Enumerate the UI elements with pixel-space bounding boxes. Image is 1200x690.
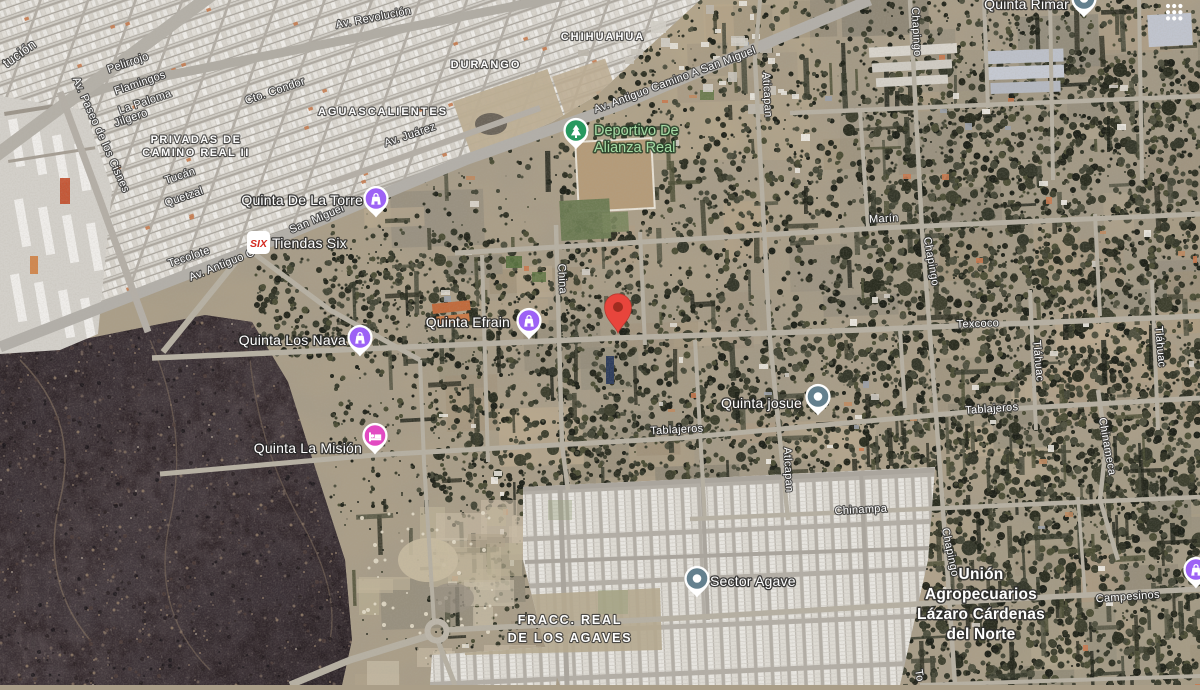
svg-text:Atlcapan: Atlcapan <box>781 447 795 493</box>
svg-text:Quinta Los Nava: Quinta Los Nava <box>239 332 346 348</box>
svg-text:Deportivo De: Deportivo De <box>594 123 679 139</box>
svg-text:Sector Agave: Sector Agave <box>710 573 796 589</box>
svg-text:Tiendas Six: Tiendas Six <box>272 235 347 251</box>
svg-text:DE LOS AGAVES: DE LOS AGAVES <box>508 631 633 645</box>
svg-text:Agropecuarios: Agropecuarios <box>925 586 1037 603</box>
svg-text:Unión: Unión <box>959 566 1004 583</box>
svg-text:PRIVADAS DE: PRIVADAS DE <box>151 134 242 146</box>
svg-text:AGUASCALIENTES: AGUASCALIENTES <box>318 106 448 118</box>
svg-text:Quinta Efrain: Quinta Efrain <box>426 314 510 330</box>
svg-text:SIX: SIX <box>250 238 268 250</box>
svg-text:FRACC. REAL: FRACC. REAL <box>518 613 623 627</box>
svg-text:del Norte: del Norte <box>947 626 1016 643</box>
svg-text:Quinta Rimar: Quinta Rimar <box>984 0 1069 12</box>
svg-text:CAMINO REAL II: CAMINO REAL II <box>142 147 250 159</box>
svg-text:Quinta La Misión: Quinta La Misión <box>254 440 362 456</box>
svg-text:Alianza Real: Alianza Real <box>594 140 675 156</box>
svg-text:DURANGO: DURANGO <box>451 59 522 71</box>
svg-text:Aticapan: Aticapan <box>760 72 774 118</box>
svg-text:CHIHUAHUA: CHIHUAHUA <box>561 31 646 43</box>
svg-text:Marín: Marín <box>869 212 899 226</box>
svg-text:Quinta De La Torre: Quinta De La Torre <box>241 192 363 208</box>
svg-text:Quinta josue: Quinta josue <box>721 395 802 411</box>
svg-text:Lázaro Cárdenas: Lázaro Cárdenas <box>917 606 1045 623</box>
svg-text:Texcoco: Texcoco <box>956 317 999 330</box>
svg-text:To: To <box>912 668 926 682</box>
svg-text:China: China <box>555 263 569 294</box>
